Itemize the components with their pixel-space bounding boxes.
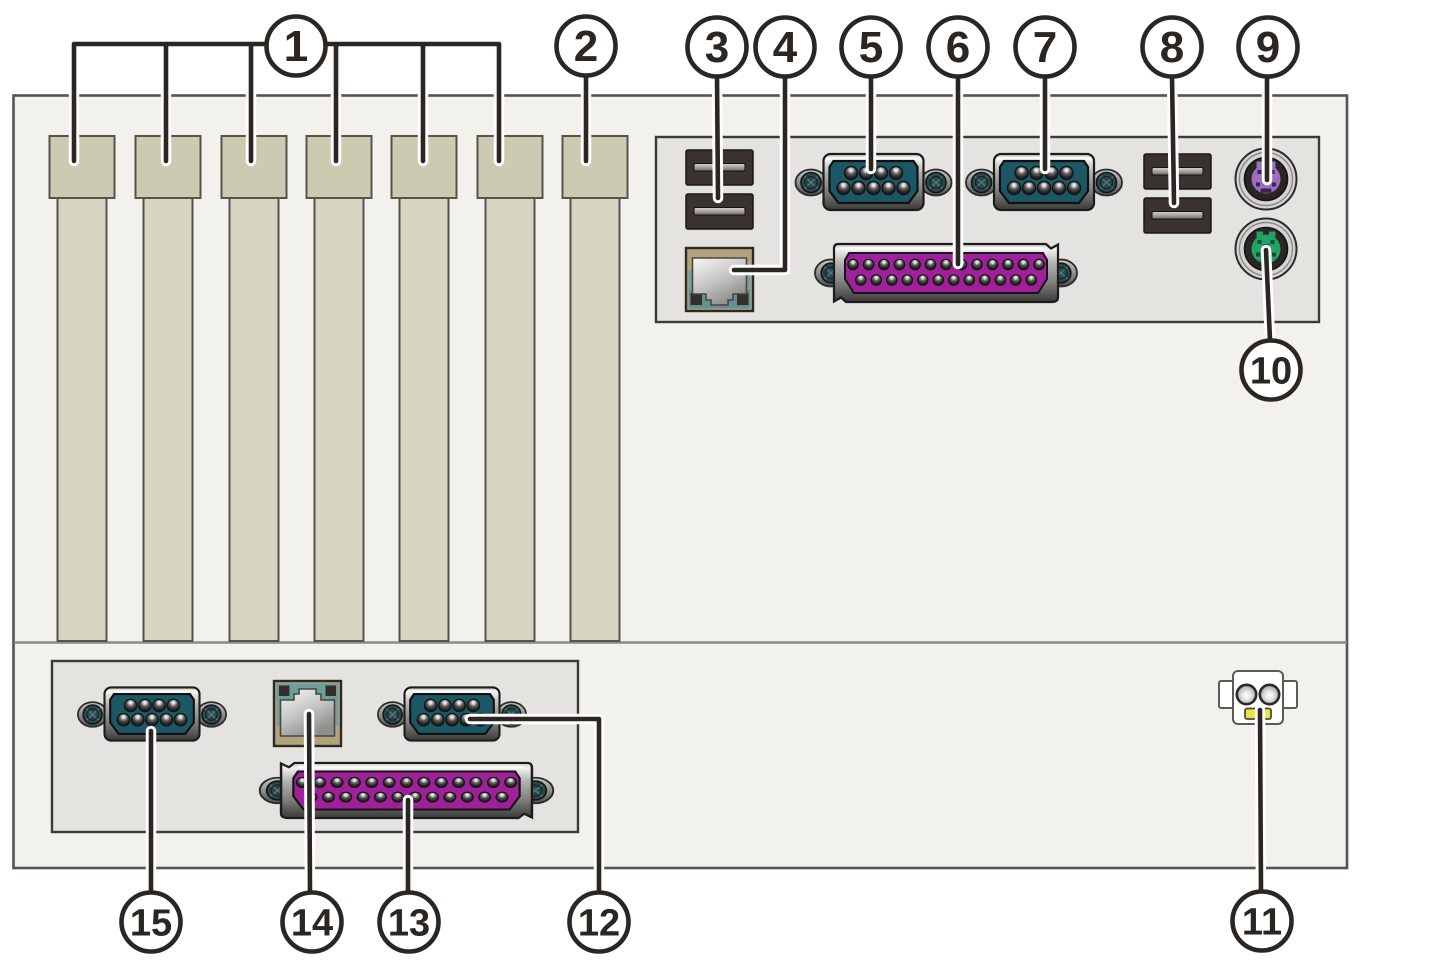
svg-text:11: 11 <box>1242 902 1282 944</box>
svg-text:8: 8 <box>1160 23 1184 72</box>
svg-text:3: 3 <box>705 23 729 72</box>
svg-text:1: 1 <box>284 22 308 71</box>
svg-text:6: 6 <box>946 23 970 72</box>
svg-text:2: 2 <box>574 22 598 71</box>
svg-text:4: 4 <box>773 23 798 72</box>
svg-text:7: 7 <box>1033 23 1057 72</box>
svg-text:9: 9 <box>1256 23 1280 72</box>
svg-text:14: 14 <box>291 903 333 945</box>
svg-text:13: 13 <box>388 903 430 945</box>
svg-text:15: 15 <box>130 903 172 945</box>
svg-text:12: 12 <box>578 903 620 945</box>
svg-text:10: 10 <box>1250 351 1292 393</box>
svg-text:5: 5 <box>859 23 883 72</box>
